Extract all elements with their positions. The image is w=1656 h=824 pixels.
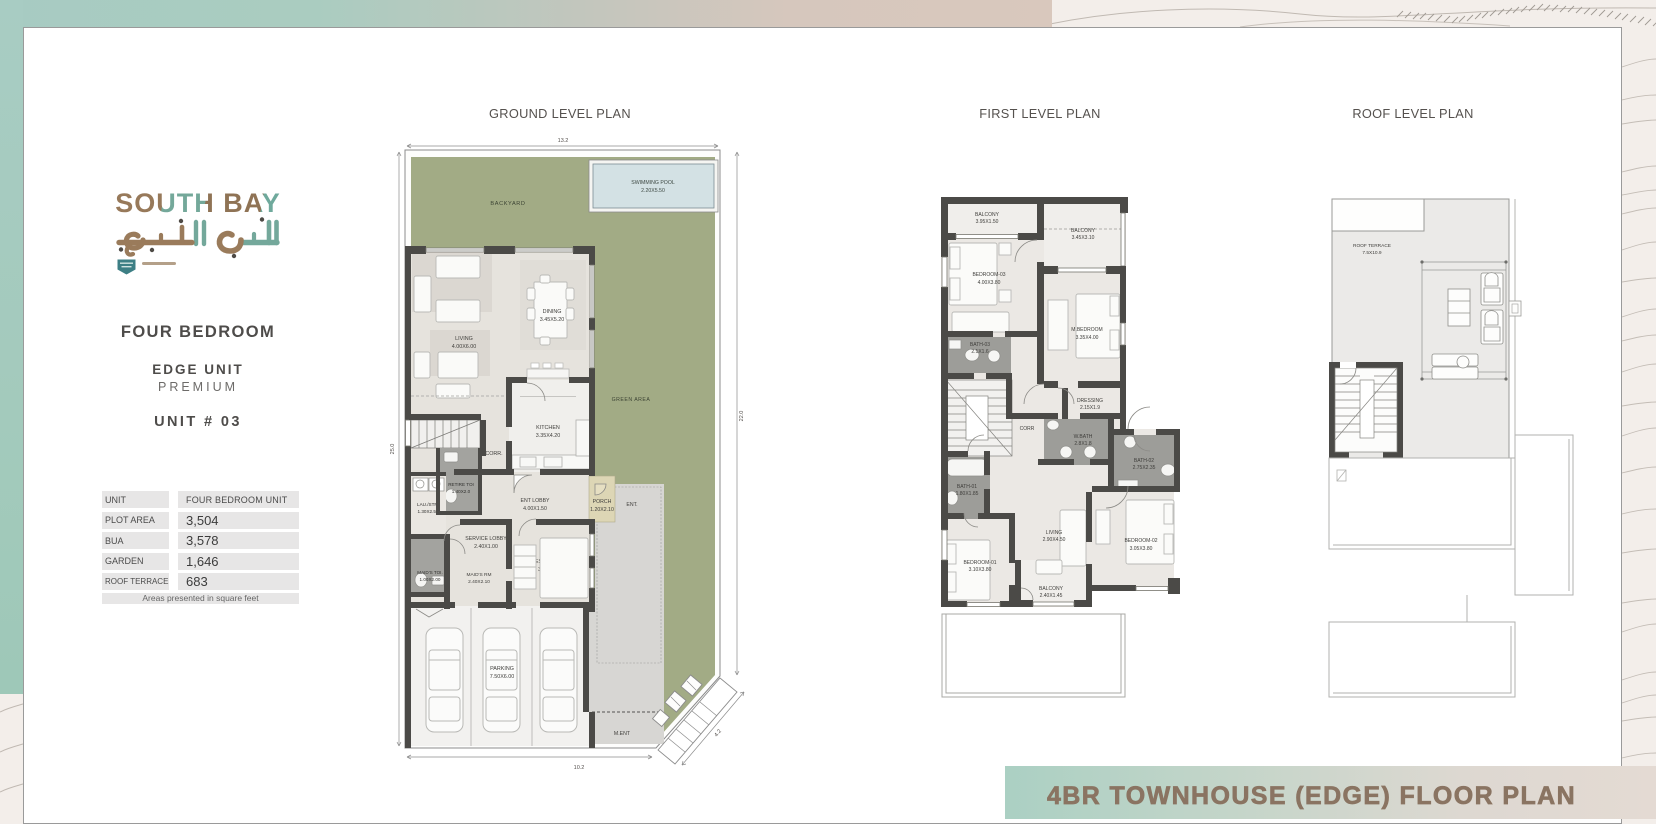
svg-text:BATH-03: BATH-03 [970,342,990,348]
svg-text:22.0: 22.0 [739,411,745,422]
svg-text:3.95X1.50: 3.95X1.50 [976,219,999,225]
svg-text:ROOF TERRACE: ROOF TERRACE [1353,243,1391,249]
svg-text:2.15X1.9: 2.15X1.9 [1080,405,1100,411]
svg-text:LIVING: LIVING [1046,530,1063,536]
svg-text:4.00X1.50: 4.00X1.50 [523,506,547,512]
svg-text:DINING: DINING [543,309,562,315]
svg-text:1.40X2.0: 1.40X2.0 [452,489,471,494]
svg-text:2.75X2.35: 2.75X2.35 [1133,465,1156,471]
svg-text:KITCHEN: KITCHEN [536,425,560,431]
svg-text:M.ENT: M.ENT [614,731,631,737]
svg-text:PARKING: PARKING [490,666,514,672]
svg-text:7.50X6.00: 7.50X6.00 [490,674,515,680]
svg-text:3.35X4.00: 3.35X4.00 [1076,335,1099,341]
svg-text:1.80X1.85: 1.80X1.85 [956,491,979,497]
svg-text:3.10X3.80: 3.10X3.80 [969,567,992,573]
svg-text:2.40X1.00: 2.40X1.00 [474,544,498,550]
svg-text:1.30X2.55: 1.30X2.55 [418,509,439,514]
svg-text:2.40X2.10: 2.40X2.10 [468,579,490,585]
svg-text:3.45X5.20: 3.45X5.20 [540,317,565,323]
svg-text:4.00X3.80: 4.00X3.80 [978,280,1001,286]
svg-text:BACKYARD: BACKYARD [490,201,525,207]
svg-text:BALCONY: BALCONY [1071,228,1096,234]
svg-text:1.00X2.00: 1.00X2.00 [420,577,441,582]
svg-text:7.5X10.9: 7.5X10.9 [1362,250,1382,256]
svg-text:1.20X2.10: 1.20X2.10 [590,507,614,513]
svg-text:BEDROOM-02: BEDROOM-02 [1124,538,1157,544]
svg-text:ENT.: ENT. [626,502,637,508]
svg-text:ENT LOBBY: ENT LOBBY [520,498,550,504]
svg-text:2.8X1.8: 2.8X1.8 [1074,441,1091,447]
svg-text:25.0: 25.0 [390,444,396,455]
svg-text:CORR.: CORR. [485,451,502,457]
svg-text:3.35X4.20: 3.35X4.20 [536,433,561,439]
svg-text:LAU./STR.: LAU./STR. [417,502,439,507]
svg-text:BATH-01: BATH-01 [957,484,977,490]
svg-text:BEDROOM-03: BEDROOM-03 [972,272,1005,278]
svg-text:2.40X1.45: 2.40X1.45 [1040,593,1063,599]
svg-text:SERVICE LOBBY: SERVICE LOBBY [465,536,507,542]
svg-text:W.BATH: W.BATH [1074,434,1093,440]
svg-text:BATH-02: BATH-02 [1134,458,1154,464]
svg-text:13.2: 13.2 [558,138,569,144]
svg-text:M.BEDROOM: M.BEDROOM [1071,327,1102,333]
svg-text:PORCH: PORCH [593,499,612,505]
svg-text:BEDROOM-01: BEDROOM-01 [963,560,996,566]
svg-text:3.05X3.80: 3.05X3.80 [1130,546,1153,552]
svg-text:BALCONY: BALCONY [1039,586,1064,592]
svg-text:SWIMMING POOL: SWIMMING POOL [631,180,675,186]
svg-text:MAID'S RM: MAID'S RM [467,572,492,578]
svg-text:MAID'S TOI.: MAID'S TOI. [417,570,442,575]
svg-text:4.2: 4.2 [713,729,722,739]
svg-text:2.20X5.50: 2.20X5.50 [641,188,665,194]
svg-text:CORR: CORR [1020,426,1035,432]
svg-text:2.90X4.50: 2.90X4.50 [1043,537,1066,543]
svg-text:RETIRE TOI: RETIRE TOI [448,482,474,487]
svg-text:3.45X3.10: 3.45X3.10 [1072,235,1095,241]
svg-text:LIVING: LIVING [455,336,473,342]
svg-text:DRESSING: DRESSING [1077,398,1103,404]
svg-text:2.1X1.6: 2.1X1.6 [971,349,988,355]
svg-text:4.00X6.00: 4.00X6.00 [452,344,477,350]
svg-text:GREEN AREA: GREEN AREA [612,397,651,403]
svg-text:10.2: 10.2 [574,765,585,771]
svg-text:BALCONY: BALCONY [975,212,1000,218]
